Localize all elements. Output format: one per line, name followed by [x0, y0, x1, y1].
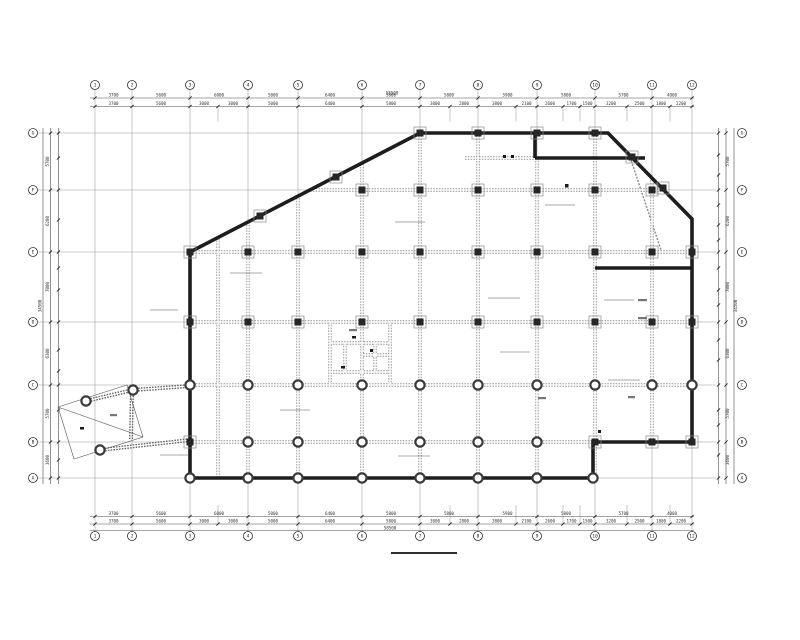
dimension-label: 6400 [325, 511, 336, 516]
dimension-label: 5800 [444, 511, 455, 516]
column-marker [243, 437, 252, 446]
column-marker [592, 130, 599, 137]
column-marker [649, 319, 656, 326]
grid-bubble-label: D [32, 320, 35, 326]
grid-bubble-label: F [32, 188, 35, 194]
grid-bubble-label: 1 [94, 534, 97, 540]
grid-bubble-label: 9 [536, 534, 539, 540]
column-marker [590, 380, 599, 389]
dimension-label: 2600 [545, 101, 556, 106]
dimension-label: 2600 [545, 519, 556, 524]
column-marker [534, 187, 541, 194]
grid-bubble-label: 3 [189, 83, 192, 89]
column-marker [534, 130, 541, 137]
column-marker [187, 249, 194, 256]
dimension-label: 3700 [108, 92, 119, 97]
dimension-label: 5700 [618, 92, 629, 97]
dimension-label: 5800 [561, 511, 572, 516]
column-marker [185, 380, 194, 389]
dimension-label: 5700 [725, 408, 730, 419]
grid-bubble-label: 11 [649, 534, 655, 540]
grid-bubble-label: B [32, 440, 35, 446]
dimension-label: 5800 [386, 519, 397, 524]
column-marker [532, 473, 541, 482]
dimension-label: 2100 [521, 101, 532, 106]
dimension-label: 3600 [45, 454, 50, 465]
column-marker [243, 380, 252, 389]
shear-walls [190, 133, 692, 478]
dimension-label: 2500 [634, 101, 645, 106]
dimension-label: 6200 [45, 215, 50, 226]
column-marker [689, 439, 696, 446]
perimeter-wall [190, 133, 692, 478]
section-mark [370, 349, 373, 352]
grid-bubble-label: 10 [592, 83, 598, 89]
grid-bubble-label: 7 [419, 534, 422, 540]
grid-bubble-label: 8 [477, 83, 480, 89]
dimension-label: 5000 [268, 101, 279, 106]
dimension-label: 3000 [228, 519, 239, 524]
dimension-label: 2200 [676, 519, 687, 524]
column-marker [417, 130, 424, 137]
dimension-label: 6300 [45, 348, 50, 359]
grid-bubble-label: G [32, 131, 35, 137]
column-marker [245, 319, 252, 326]
text-annotation-blob [628, 396, 635, 398]
grid-bubble-label: 6 [361, 83, 364, 89]
dimension-label: 3700 [108, 519, 119, 524]
wing-structure [58, 385, 190, 459]
dimension-label: 3000 [430, 101, 441, 106]
column-marker [295, 319, 302, 326]
dimension-label: 3000 [430, 519, 441, 524]
grid-bubble-label: 3 [189, 534, 192, 540]
beam-lines-under [190, 133, 692, 478]
dimension-label: 1700 [566, 101, 577, 106]
column-markers [81, 127, 698, 483]
column-marker [187, 319, 194, 326]
column-marker [687, 380, 696, 389]
column-marker [359, 187, 366, 194]
grid-bubble-label: D [741, 320, 744, 326]
dimension-label: 5600 [156, 511, 167, 516]
grid-bubble-label: 1 [94, 83, 97, 89]
column-marker [128, 385, 137, 394]
column-marker [417, 187, 424, 194]
section-mark [565, 184, 569, 188]
dimension-label: 5800 [386, 511, 397, 516]
beam-lines-over [190, 133, 692, 478]
dimension-label: 5700 [45, 408, 50, 419]
column-marker [333, 174, 340, 181]
column-marker [588, 473, 597, 482]
section-mark [511, 155, 514, 158]
column-marker [293, 473, 302, 482]
dimension-label: 5700 [725, 156, 730, 167]
grid-bubble-label: 10 [592, 534, 598, 540]
column-marker [473, 437, 482, 446]
text-annotation-blob [638, 299, 647, 301]
section-mark [598, 430, 601, 433]
dimension-label: 3800 [492, 101, 503, 106]
column-marker [187, 439, 194, 446]
dimension-label: 4000 [667, 511, 678, 516]
grid-bubble-label: 12 [689, 83, 695, 89]
dimension-label: 5900 [502, 92, 513, 97]
grid-bubble-label: 9 [536, 83, 539, 89]
column-marker [417, 319, 424, 326]
column-marker [532, 437, 541, 446]
grid-bubble-label: 6 [361, 534, 364, 540]
column-marker [293, 437, 302, 446]
column-marker [475, 249, 482, 256]
grid-bubble-label: E [32, 250, 35, 256]
column-marker [95, 445, 104, 454]
drawing-sheet: 3700560060005000640058005800590058005700… [0, 0, 800, 640]
grid-bubble-label: G [741, 131, 744, 137]
column-marker [649, 439, 656, 446]
dimension-label: 6000 [214, 511, 225, 516]
column-marker [245, 249, 252, 256]
total-dimension: 58500 [386, 91, 399, 96]
grid-bubble-label: 8 [477, 534, 480, 540]
dimension-label: 4000 [667, 92, 678, 97]
column-marker [257, 213, 264, 220]
dimension-label: 5600 [156, 101, 167, 106]
grid-bubble-label: 5 [297, 534, 300, 540]
total-dimension: 34500 [37, 299, 42, 312]
column-marker [592, 319, 599, 326]
text-annotation-blob [110, 414, 117, 416]
dimension-label: 1500 [582, 519, 593, 524]
column-marker [415, 473, 424, 482]
column-marker [660, 185, 667, 192]
diagonal-brace [628, 151, 661, 250]
column-marker [647, 380, 656, 389]
dimension-label: 3700 [108, 101, 119, 106]
text-annotation-blob [638, 317, 647, 319]
dimension-label: 5600 [156, 519, 167, 524]
section-mark [352, 336, 356, 339]
wing-beam-core [100, 440, 190, 450]
dimension-label: 3600 [725, 454, 730, 465]
grid-bubble-label: 5 [297, 83, 300, 89]
grid-bubble-label: 11 [649, 83, 655, 89]
dimension-label: 7000 [725, 281, 730, 292]
grid-bubble-label: 4 [247, 83, 250, 89]
total-dimension: 58500 [384, 526, 397, 531]
dimension-label: 6200 [725, 215, 730, 226]
dimension-label: 5000 [268, 519, 279, 524]
dimension-label: 1800 [656, 101, 667, 106]
column-marker [243, 473, 252, 482]
dimension-label: 2200 [676, 101, 687, 106]
dimension-label: 1800 [656, 519, 667, 524]
column-marker [475, 187, 482, 194]
column-marker [357, 380, 366, 389]
dimension-label: 3000 [199, 101, 210, 106]
grid-bubble-label: C [32, 383, 35, 389]
text-annotation-blob [349, 329, 357, 331]
column-marker [417, 249, 424, 256]
grid-bubble-label: B [741, 440, 744, 446]
column-marker [415, 437, 424, 446]
column-marker [473, 380, 482, 389]
column-marker [357, 473, 366, 482]
dimension-label: 2100 [521, 519, 532, 524]
dimension-label: 2500 [634, 519, 645, 524]
column-marker [534, 319, 541, 326]
dimension-label: 3700 [108, 511, 119, 516]
grid-bubble-label: 2 [131, 83, 134, 89]
grid-bubble-label: C [741, 383, 744, 389]
dimension-label: 3800 [492, 519, 503, 524]
dimension-label: 3000 [228, 101, 239, 106]
dimension-label: 5000 [268, 92, 279, 97]
column-marker [295, 249, 302, 256]
dimension-label: 5600 [156, 92, 167, 97]
dimension-label: 2800 [459, 519, 470, 524]
grid-bubble-label: E [741, 250, 744, 256]
total-dimension: 34500 [733, 299, 738, 312]
floor-plan-drawing: 3700560060005000640058005800590058005700… [0, 0, 800, 640]
column-marker [534, 249, 541, 256]
section-mark [341, 366, 345, 369]
column-marker [359, 319, 366, 326]
column-marker [293, 380, 302, 389]
column-marker [592, 439, 599, 446]
column-marker [473, 473, 482, 482]
column-marker [185, 473, 194, 482]
dimension-label: 6000 [214, 92, 225, 97]
grid-bubble-label: 4 [247, 534, 250, 540]
dimension-label: 5800 [561, 92, 572, 97]
column-marker [475, 130, 482, 137]
wing-beam-core [86, 390, 133, 401]
column-marker [629, 154, 636, 161]
dimension-label: 5700 [45, 156, 50, 167]
dimension-label: 5800 [386, 101, 397, 106]
dimension-label: 7000 [45, 281, 50, 292]
dimension-label: 6400 [325, 92, 336, 97]
dimension-label: 5000 [268, 511, 279, 516]
column-marker [475, 319, 482, 326]
grid-bubble-label: 7 [419, 83, 422, 89]
dimension-label: 6300 [725, 348, 730, 359]
dimension-label: 1500 [582, 101, 593, 106]
dimension-label: 6400 [325, 101, 336, 106]
grid-bubble-label: F [741, 188, 744, 194]
section-mark [503, 155, 506, 158]
dimension-label: 5800 [444, 92, 455, 97]
section-mark [80, 427, 84, 430]
column-marker [689, 319, 696, 326]
dimension-label: 3000 [199, 519, 210, 524]
grid-bubble-label: A [32, 476, 35, 482]
column-marker [649, 187, 656, 194]
dimension-label: 1700 [566, 519, 577, 524]
column-marker [359, 249, 366, 256]
column-marker [357, 437, 366, 446]
column-marker [649, 249, 656, 256]
dimension-label: 3200 [606, 101, 617, 106]
dimension-label: 5900 [502, 511, 513, 516]
column-marker [689, 249, 696, 256]
column-marker [415, 380, 424, 389]
text-annotation-blob [538, 397, 546, 399]
dimension-label: 6400 [325, 519, 336, 524]
grid-bubble-label: 2 [131, 534, 134, 540]
grid-bubble-label: 12 [689, 534, 695, 540]
column-marker [81, 396, 90, 405]
column-marker [532, 380, 541, 389]
dimension-label: 2800 [459, 101, 470, 106]
grid-bubble-label: A [741, 476, 744, 482]
column-marker [592, 249, 599, 256]
dimension-label: 3200 [606, 519, 617, 524]
dimension-label: 5700 [618, 511, 629, 516]
column-marker [592, 187, 599, 194]
